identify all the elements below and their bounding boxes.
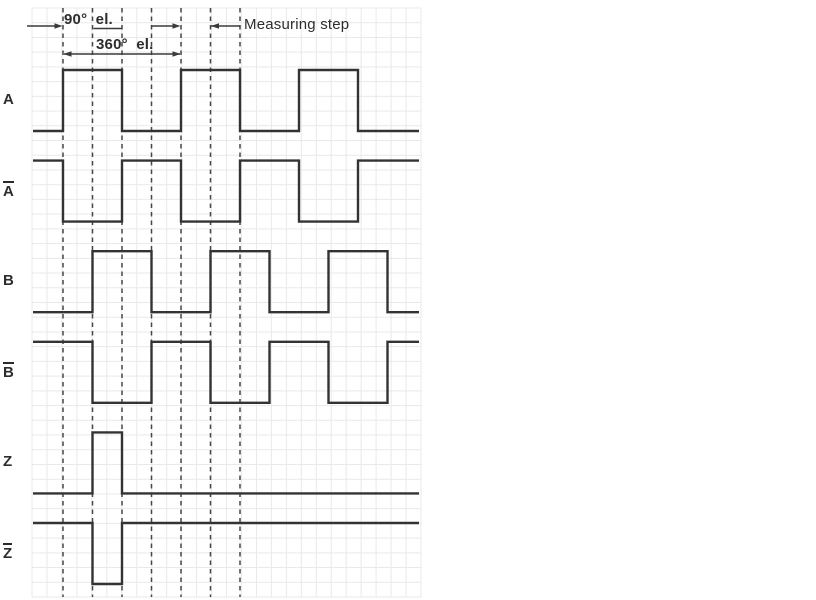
dimension-90el-label: 90° el. xyxy=(64,12,113,29)
measuring-step-label: Measuring step xyxy=(244,17,349,34)
signal-label-b-text: B xyxy=(3,273,14,290)
signal-label-z-bar-text: Z xyxy=(3,543,12,563)
signal-label-a-bar: A xyxy=(3,181,14,201)
signal-label-b-bar-text: B xyxy=(3,362,14,382)
signal-label-a: A xyxy=(3,92,14,109)
timing-diagram-canvas xyxy=(0,0,816,600)
dimension-360el-label: 360° el. xyxy=(96,37,153,54)
signal-label-z-bar: Z xyxy=(3,543,12,563)
encoder-timing-diagram: 90° el. 360° el. Measuring step A A B B … xyxy=(0,0,816,600)
grid-lines xyxy=(32,8,421,597)
signal-label-b: B xyxy=(3,273,14,290)
signal-label-a-bar-text: A xyxy=(3,181,14,201)
dimension-measuring-step xyxy=(152,23,241,29)
signal-label-a-text: A xyxy=(3,92,14,109)
signal-label-b-bar: B xyxy=(3,362,14,382)
signal-label-z-text: Z xyxy=(3,454,12,471)
signal-label-z: Z xyxy=(3,454,12,471)
